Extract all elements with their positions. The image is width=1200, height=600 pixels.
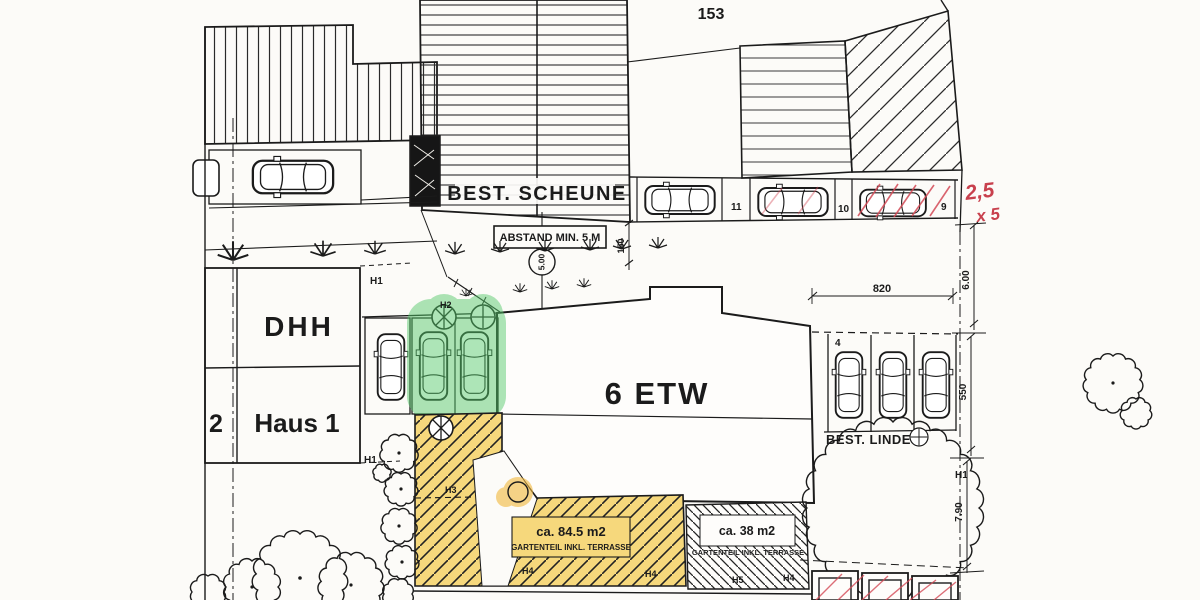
garden-small-area: ca. 38 m2	[719, 524, 775, 538]
hedge-label-h5: H5	[732, 575, 744, 585]
boundary-line	[627, 48, 740, 62]
dim-790-label: 7.90	[954, 502, 965, 522]
stall-number-11: 11	[731, 202, 742, 213]
hedge-strip	[410, 136, 440, 206]
hedge-label-h1b: H1	[364, 455, 377, 466]
hedge-label-h4b: H4	[645, 569, 657, 579]
car-icon	[758, 184, 827, 220]
car-icon	[374, 334, 408, 400]
hedge-label-h2: H2	[440, 300, 452, 310]
haus-label: Haus 1	[254, 408, 339, 438]
main-building-label: 6 ETW	[605, 376, 710, 411]
barn-label: BEST. SCHEUNE	[447, 183, 627, 205]
unit-number: 2	[209, 410, 223, 438]
stall-number-10: 10	[838, 204, 850, 215]
existing-building-topright	[845, 0, 962, 172]
hedge-label-h1a: H1	[370, 276, 383, 287]
plot-number: 153	[698, 6, 725, 23]
stall-number-4: 4	[835, 338, 841, 349]
boundary-line-right	[960, 170, 962, 232]
abstand-dimension: ABSTAND MIN. 5 M 5.00	[494, 212, 606, 312]
dim-600-label: 6.00	[961, 270, 972, 290]
existing-building-topleft	[205, 25, 437, 144]
barn-building: BEST. SCHEUNE	[420, 0, 630, 222]
hedge-label-h3: H3	[445, 485, 457, 495]
main-building: 6 ETW	[497, 287, 814, 503]
site-plan: BEST. SCHEUNE 153 11 10 9	[0, 0, 1200, 600]
existing-building-topmid	[740, 41, 852, 178]
car-icon	[645, 182, 714, 218]
garden-large-caption: GARTENTEIL INKL. TERRASSE	[511, 543, 632, 552]
garden-large-area: ca. 84.5 m2	[536, 524, 605, 539]
car-icon	[832, 352, 866, 418]
car-icon	[253, 156, 333, 197]
car-icon	[876, 352, 910, 418]
hedge-label-h4c: H4	[783, 573, 795, 583]
garden-small-caption: GARTENTEIL INKL. TERRASSE	[692, 548, 804, 557]
dim-550-label: 550	[958, 383, 969, 400]
red-handwriting: 2,5 x 5	[963, 179, 1002, 227]
hedge-label-h4a: H4	[522, 566, 534, 576]
stall-number-9: 9	[941, 202, 947, 213]
dhh-label: DHH	[264, 311, 334, 342]
green-highlight	[407, 294, 506, 429]
hedge-label-h1-right: H1	[955, 470, 968, 481]
dim-820-label: 820	[873, 283, 891, 295]
boundary-dash	[360, 263, 412, 266]
svg-text:2,5: 2,5	[963, 179, 996, 206]
abstand-value: 5.00	[536, 253, 546, 270]
svg-text:x 5: x 5	[974, 204, 1001, 226]
site-plan-drawing: BEST. SCHEUNE 153 11 10 9	[0, 0, 1200, 600]
car-icon	[919, 352, 953, 418]
